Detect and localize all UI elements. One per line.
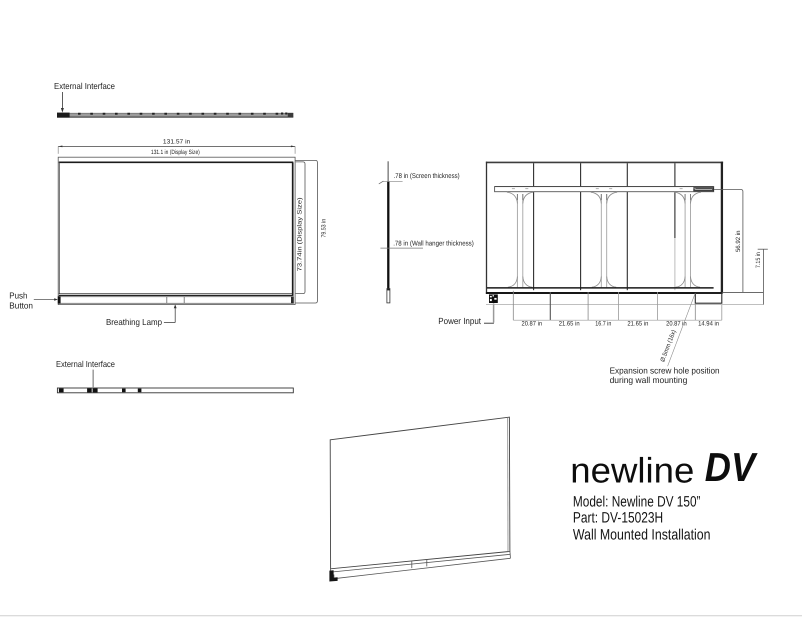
svg-text:56.92 in: 56.92 in [735,230,742,252]
svg-text:Model: Newline DV 150”: Model: Newline DV 150” [573,493,701,510]
svg-text:Button: Button [9,300,33,310]
svg-text:21.65 in: 21.65 in [559,321,580,328]
svg-text:20.87 in: 20.87 in [666,321,687,328]
svg-text:73.74in (Display Size): 73.74in (Display Size) [297,197,304,271]
svg-text:131.1 in (Display Size): 131.1 in (Display Size) [151,149,200,156]
svg-text:Push: Push [9,290,27,300]
svg-text:External Interface: External Interface [54,81,115,91]
svg-text:during wall mounting: during wall mounting [610,375,688,385]
svg-text:Part: DV-15023H: Part: DV-15023H [573,510,663,527]
svg-text:External Interface: External Interface [56,359,115,369]
svg-text:Breathing Lamp: Breathing Lamp [106,317,162,327]
svg-text:DV: DV [705,444,758,490]
svg-text:.78 in (Screen thickness): .78 in (Screen thickness) [394,172,460,180]
svg-text:79.53 in: 79.53 in [321,218,328,237]
svg-text:newline: newline [570,451,694,490]
svg-text:Ø.5mm (16x): Ø.5mm (16x) [659,329,677,363]
svg-text:Expansion screw hole position: Expansion screw hole position [610,365,720,375]
svg-text:131.57 in: 131.57 in [163,139,191,146]
svg-text:Wall Mounted Installation: Wall Mounted Installation [573,527,711,544]
svg-text:14.94 in: 14.94 in [698,321,719,328]
svg-text:Power Input: Power Input [438,316,481,326]
svg-text:16.7 in: 16.7 in [595,321,611,328]
svg-text:21.65 in: 21.65 in [627,321,648,328]
svg-text:.78 in (Wall hanger thickness): .78 in (Wall hanger thickness) [393,240,474,248]
svg-text:20.87 in: 20.87 in [522,321,543,328]
svg-text:7.15 in: 7.15 in [755,252,762,268]
